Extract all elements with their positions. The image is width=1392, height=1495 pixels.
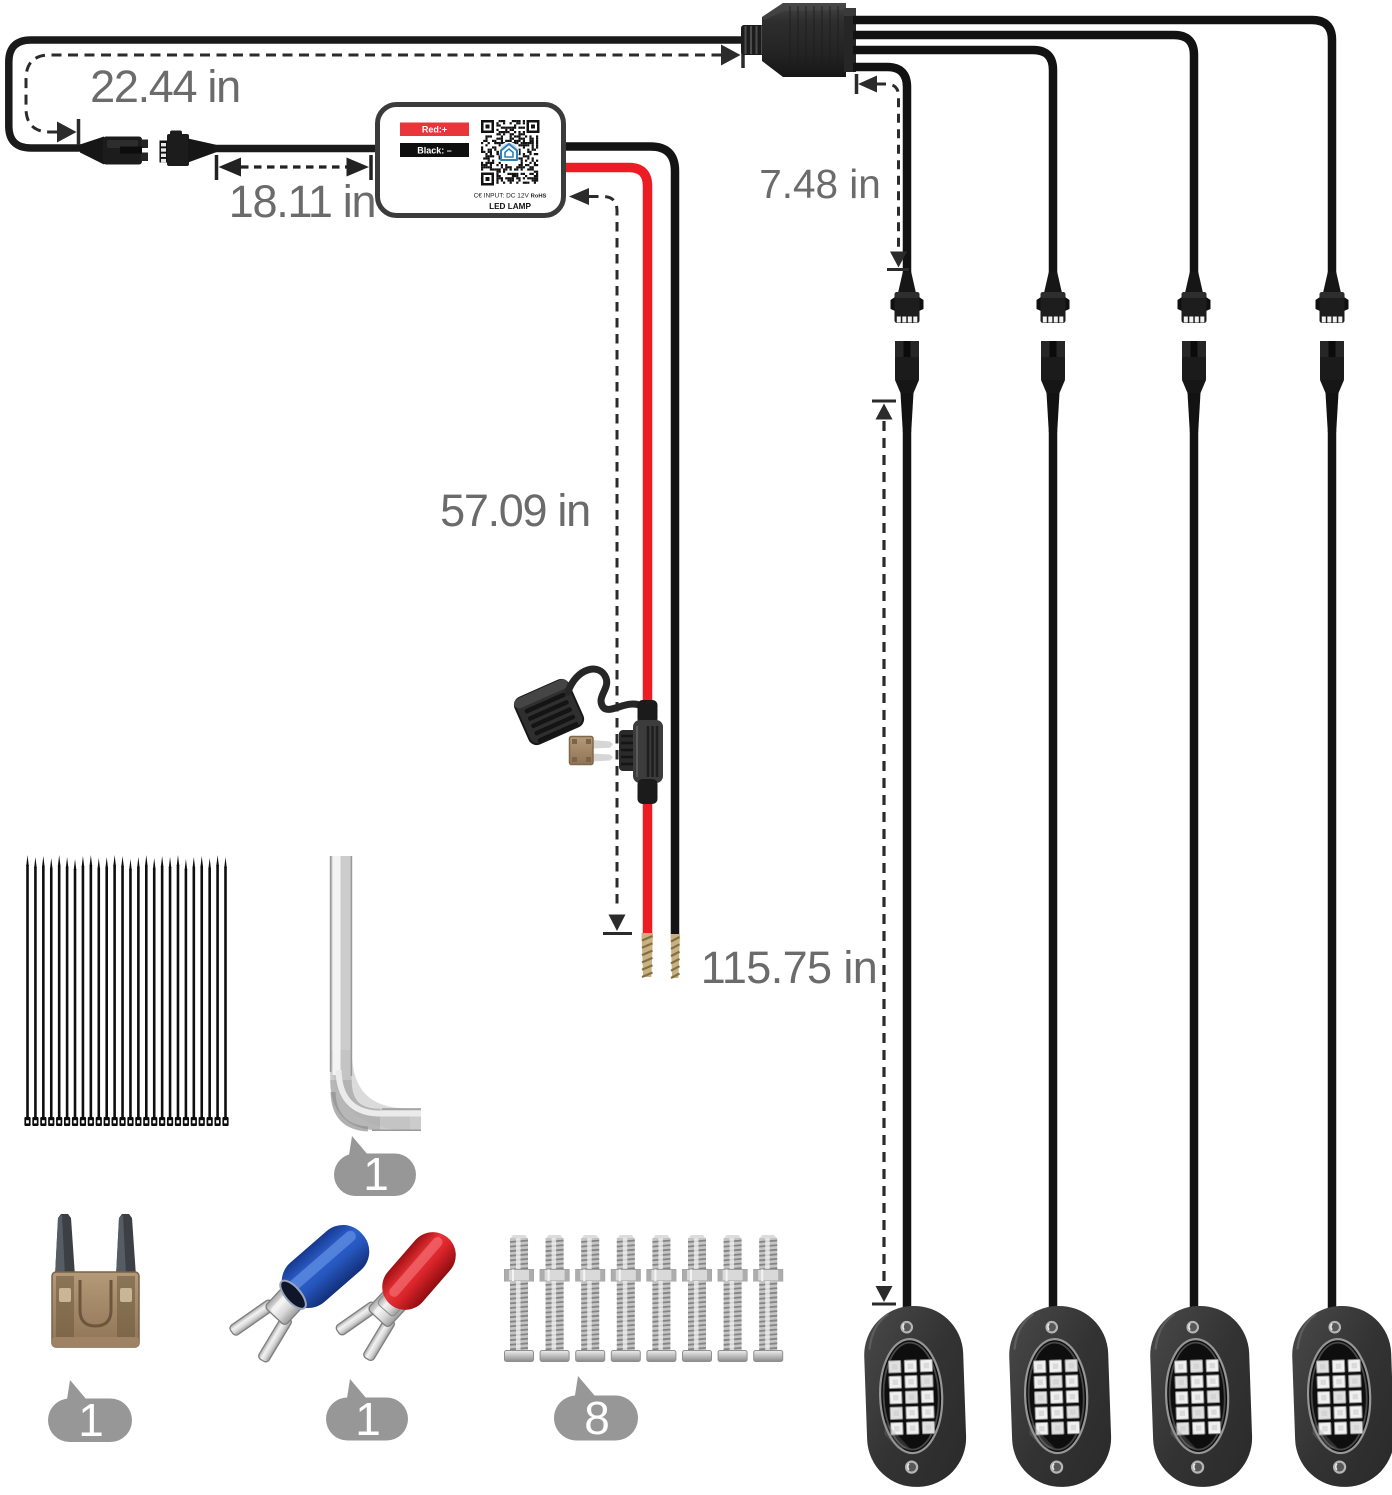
svg-text:Black: –: Black: – — [417, 145, 452, 155]
svg-text:7.48 in: 7.48 in — [759, 161, 881, 207]
svg-text:57.09 in: 57.09 in — [440, 485, 590, 536]
svg-text:22.44 in: 22.44 in — [90, 61, 240, 112]
svg-text:8: 8 — [584, 1392, 610, 1444]
svg-text:18.11 in: 18.11 in — [229, 176, 375, 227]
svg-text:1: 1 — [78, 1394, 104, 1446]
svg-text:LED LAMP: LED LAMP — [489, 202, 531, 211]
svg-text:1: 1 — [355, 1393, 381, 1445]
svg-text:Red:+: Red:+ — [422, 125, 447, 135]
svg-text:C€ INPUT: DC 12V RoHS: C€ INPUT: DC 12V RoHS — [474, 193, 547, 200]
svg-text:115.75 in: 115.75 in — [701, 942, 877, 993]
svg-text:1: 1 — [363, 1148, 389, 1200]
